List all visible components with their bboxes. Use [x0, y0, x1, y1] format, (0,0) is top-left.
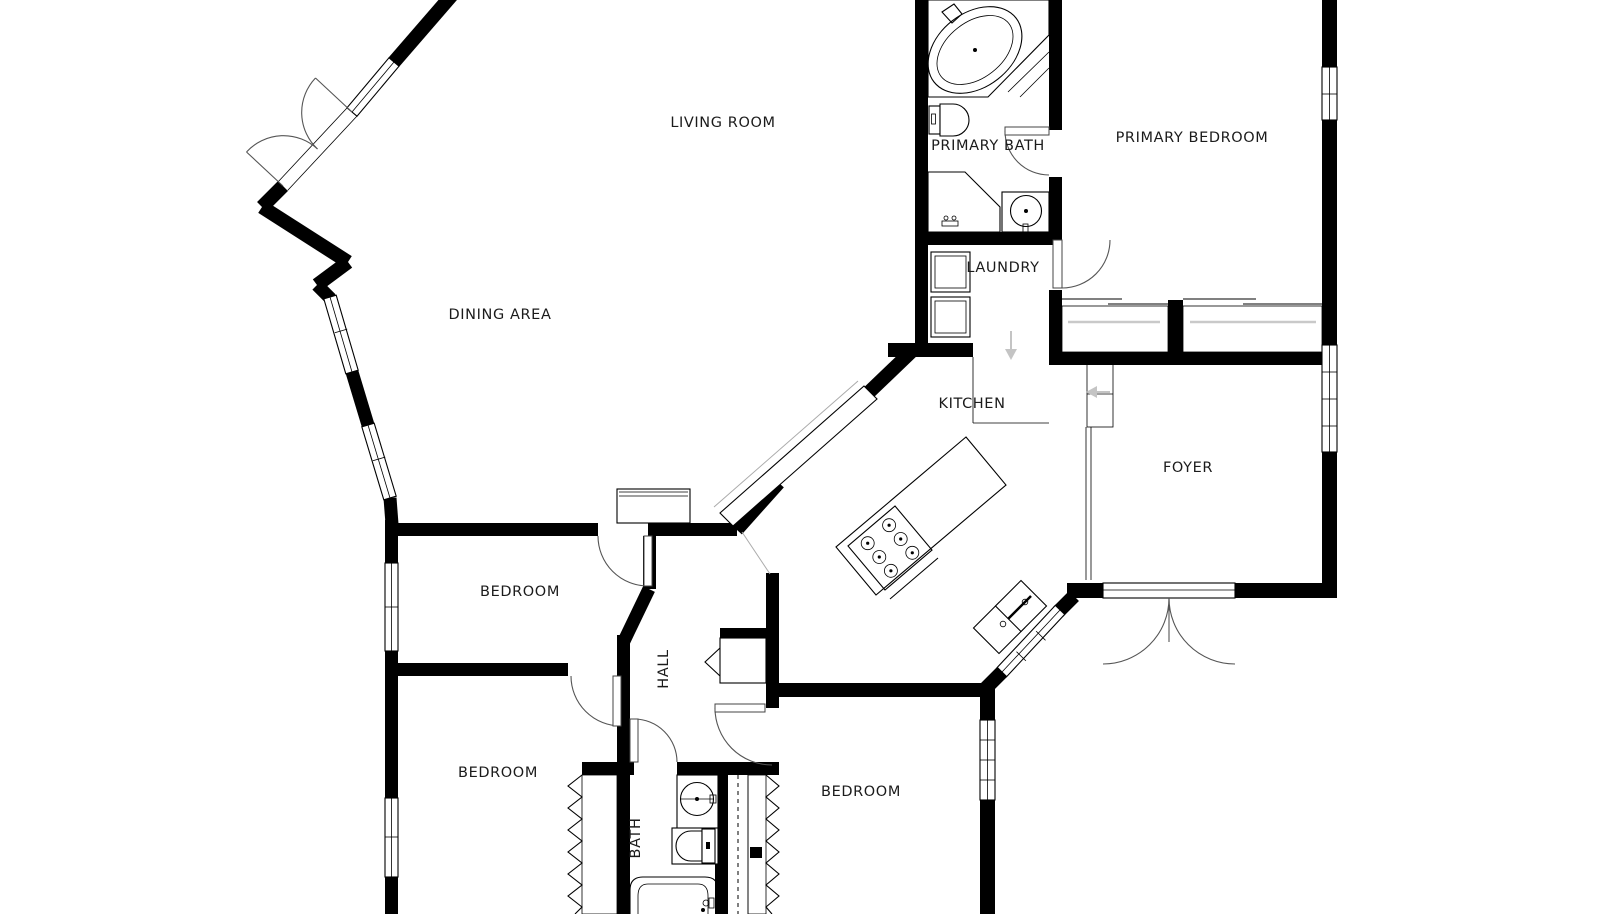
room-label-primary-bath: PRIMARY BATH	[931, 138, 1045, 154]
bar-counter	[714, 381, 877, 526]
closet-primary-right	[1183, 299, 1322, 352]
room-label-bath: BATH	[628, 818, 644, 859]
hall-bath-toilet	[672, 828, 718, 864]
bedroom3-door	[715, 704, 772, 765]
corner-tub	[911, 0, 1049, 111]
room-label-laundry: LAUNDRY	[966, 260, 1039, 276]
washer	[931, 252, 970, 292]
pedestal-sink	[677, 775, 718, 830]
room-label-bedroom-lower-right: BEDROOM	[821, 784, 901, 800]
kitchen-floor-edge	[742, 532, 770, 574]
bedroom2-door	[571, 676, 621, 726]
primary-bedroom-door	[1053, 240, 1110, 288]
vanity-sink	[1002, 192, 1049, 233]
primary-bath-fixtures	[911, 0, 1049, 233]
kitchen-island-cooktop	[836, 437, 1006, 599]
primary-toilet	[929, 104, 969, 136]
stairs-foyer-steps	[1086, 362, 1113, 580]
closet-primary-left	[1062, 299, 1168, 352]
kitchen-fixtures	[714, 381, 1047, 654]
dryer	[931, 297, 970, 337]
room-labels: LIVING ROOM DINING AREA PRIMARY BATH PRI…	[449, 115, 1269, 858]
room-label-bedroom-upper-left: BEDROOM	[480, 584, 560, 600]
floor-plan-drawing: LIVING ROOM DINING AREA PRIMARY BATH PRI…	[0, 0, 1600, 914]
closet-bedroom3	[738, 775, 779, 914]
room-label-living-room: LIVING ROOM	[670, 115, 775, 131]
patio-double-door	[247, 78, 357, 190]
room-label-dining-area: DINING AREA	[449, 307, 552, 323]
bedroom1-door	[598, 536, 652, 586]
closet-bedroom2	[568, 775, 617, 914]
closet-linen-hall	[705, 638, 766, 683]
laundry-fixtures	[931, 252, 970, 337]
room-label-bedroom-lower-left: BEDROOM	[458, 765, 538, 781]
room-label-primary-bedroom: PRIMARY BEDROOM	[1116, 130, 1269, 146]
entry-double-door	[1103, 583, 1235, 664]
room-label-foyer: FOYER	[1163, 460, 1213, 476]
vanity	[928, 172, 1000, 232]
floor-plan-canvas: LIVING ROOM DINING AREA PRIMARY BATH PRI…	[0, 0, 1600, 914]
bath-door	[630, 719, 677, 762]
bathtub	[630, 877, 718, 914]
room-label-kitchen: KITCHEN	[938, 396, 1005, 412]
closet-living-room	[617, 489, 690, 523]
room-label-hall: HALL	[656, 649, 672, 688]
